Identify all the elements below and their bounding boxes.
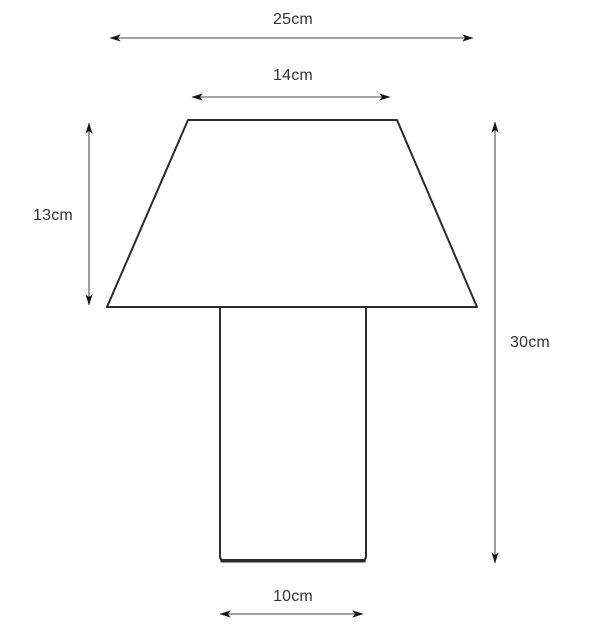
dimension-label-total-height: 30cm xyxy=(510,334,550,351)
dimension-label-shade-height: 13cm xyxy=(33,207,73,224)
lamp-dimension-diagram: 25cm 14cm 13cm 30cm 10cm xyxy=(0,0,600,641)
dimension-total-height: 30cm xyxy=(495,122,550,563)
diagram-canvas: 25cm 14cm 13cm 30cm 10cm xyxy=(0,0,600,641)
dimension-overall-width: 25cm xyxy=(110,11,473,38)
lamp-base xyxy=(220,307,366,561)
dimension-base-width: 10cm xyxy=(220,588,363,614)
dimension-label-base-width: 10cm xyxy=(273,588,313,605)
dimension-shade-height: 13cm xyxy=(33,123,89,305)
dimension-label-overall-width: 25cm xyxy=(273,11,313,28)
lamp-shade-outline xyxy=(107,120,477,307)
lamp-base-outline xyxy=(220,307,366,561)
dimension-shade-top-width: 14cm xyxy=(192,67,390,97)
dimension-label-shade-top-width: 14cm xyxy=(273,67,313,84)
